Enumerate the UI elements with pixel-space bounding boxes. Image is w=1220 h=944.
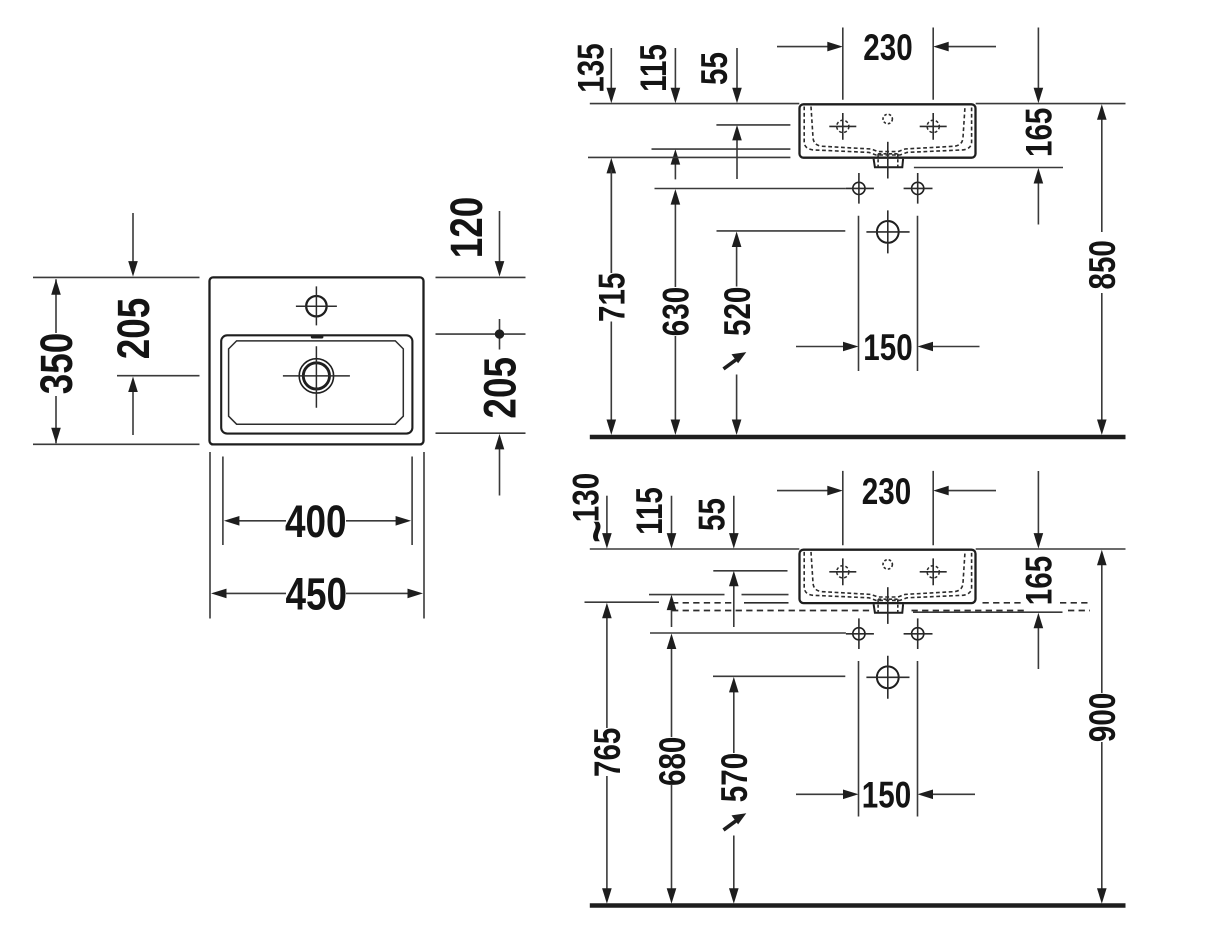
svg-text:715: 715	[593, 273, 634, 322]
svg-text:765: 765	[588, 728, 629, 777]
svg-text:520: 520	[718, 287, 759, 336]
svg-text:165: 165	[1020, 108, 1061, 157]
svg-text:115: 115	[634, 44, 675, 92]
svg-text:230: 230	[863, 28, 912, 69]
svg-text:150: 150	[862, 776, 911, 817]
svg-text:150: 150	[863, 328, 912, 369]
svg-text:135: 135	[571, 43, 612, 92]
svg-text:~: ~	[570, 520, 623, 542]
svg-text:900: 900	[1083, 693, 1124, 742]
svg-text:350: 350	[32, 333, 82, 395]
svg-text:230: 230	[862, 472, 911, 513]
svg-text:55: 55	[695, 52, 736, 85]
svg-text:400: 400	[285, 497, 347, 547]
svg-text:205: 205	[475, 357, 525, 419]
svg-text:570: 570	[715, 753, 756, 802]
svg-text:165: 165	[1020, 556, 1061, 605]
svg-text:450: 450	[286, 569, 348, 619]
svg-text:55: 55	[692, 498, 733, 531]
svg-text:680: 680	[653, 737, 694, 786]
svg-text:630: 630	[657, 287, 698, 336]
svg-text:850: 850	[1083, 240, 1124, 289]
svg-text:115: 115	[630, 487, 671, 535]
svg-text:120: 120	[442, 197, 492, 259]
svg-text:205: 205	[109, 298, 159, 360]
svg-text:130: 130	[566, 473, 607, 522]
